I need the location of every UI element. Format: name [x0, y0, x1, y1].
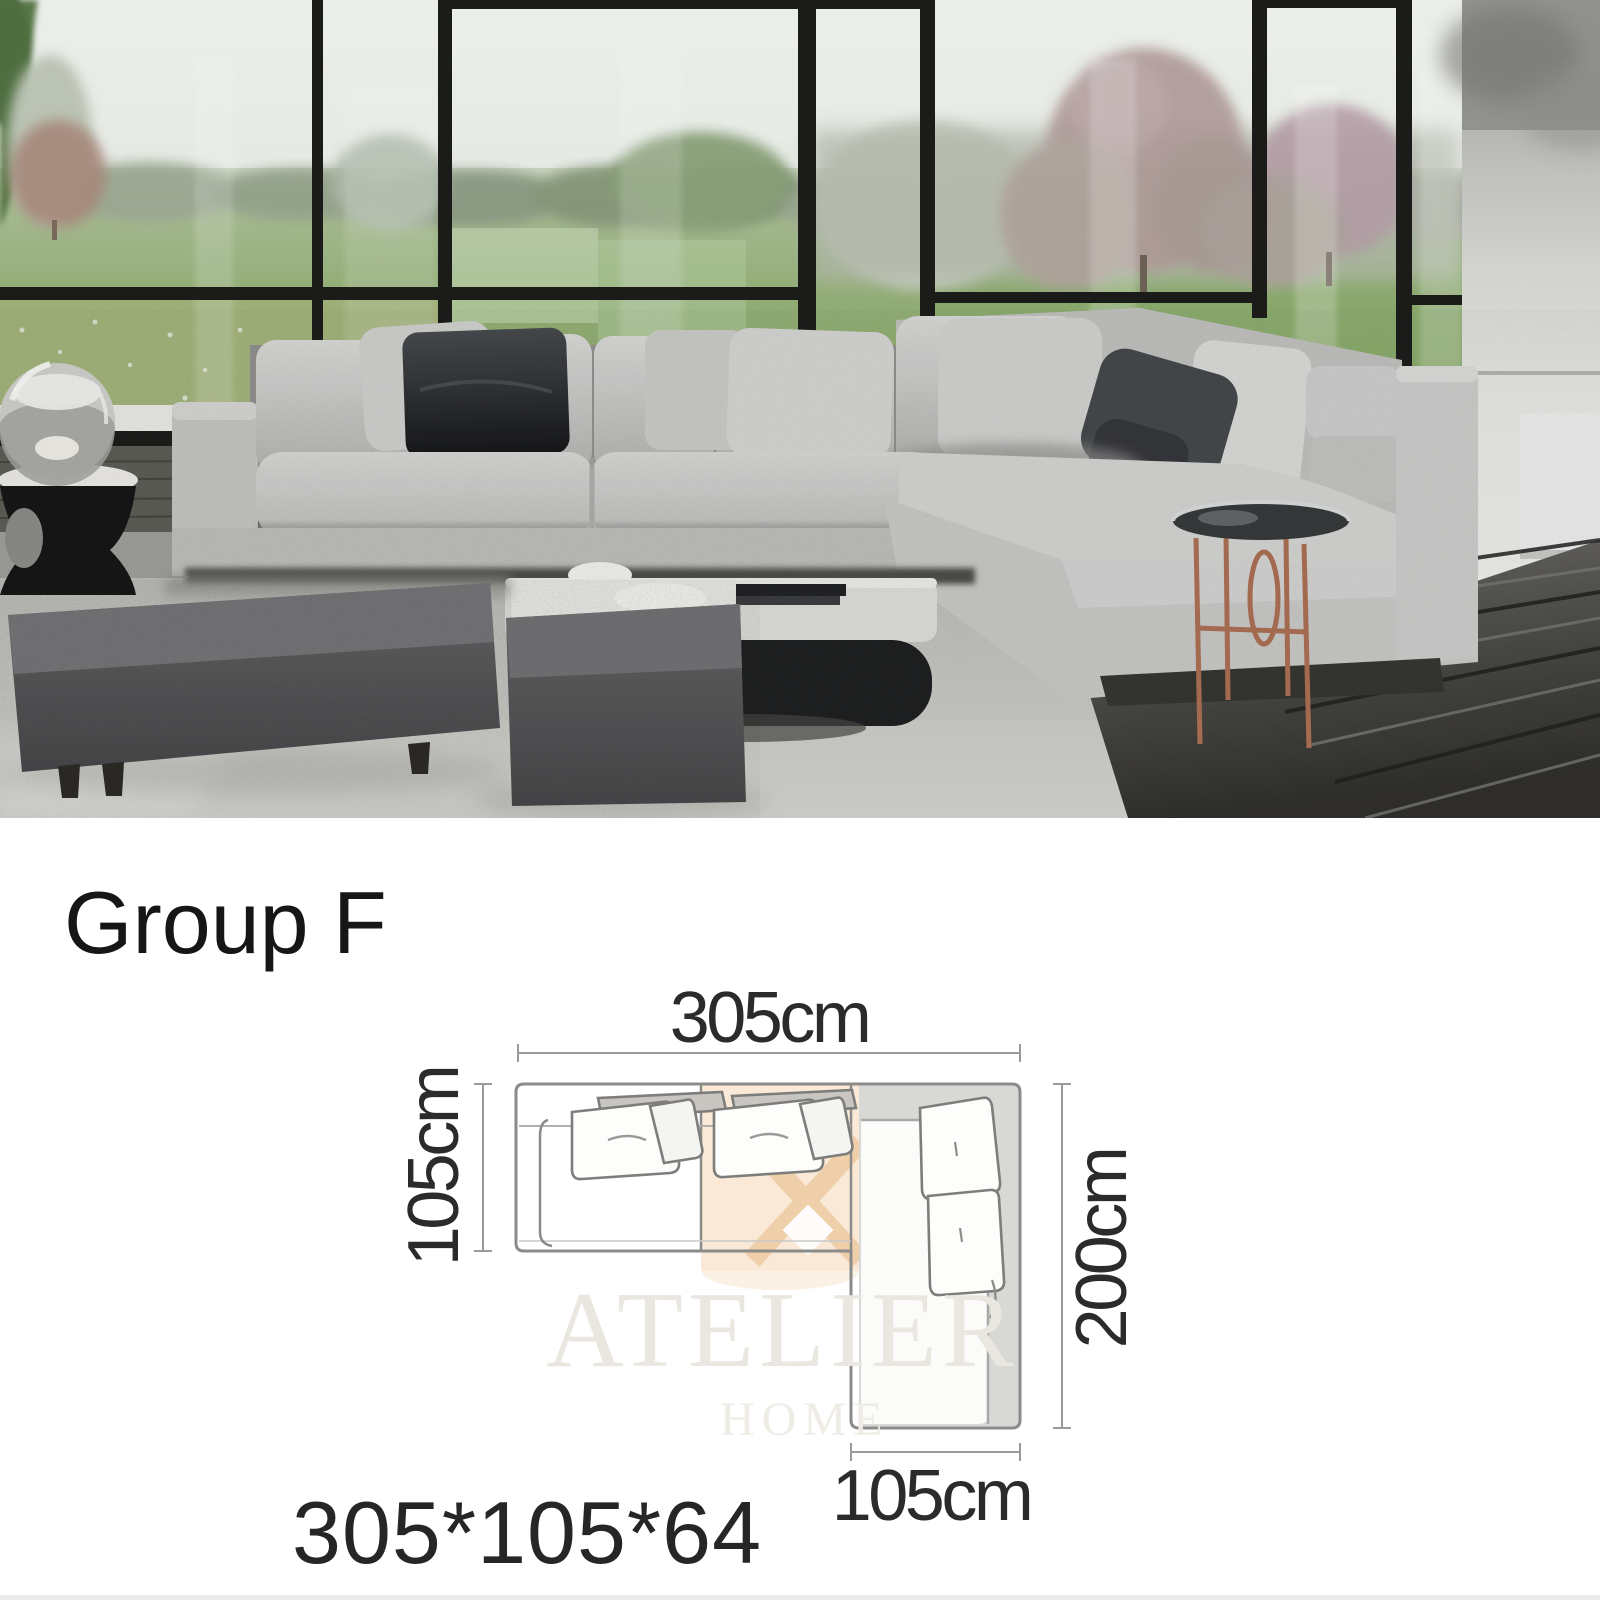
svg-text:105cm: 105cm [394, 1068, 474, 1267]
svg-text:200cm: 200cm [1062, 1150, 1142, 1349]
svg-text:105cm: 105cm [832, 1456, 1031, 1536]
svg-text:305cm: 305cm [670, 980, 869, 1058]
